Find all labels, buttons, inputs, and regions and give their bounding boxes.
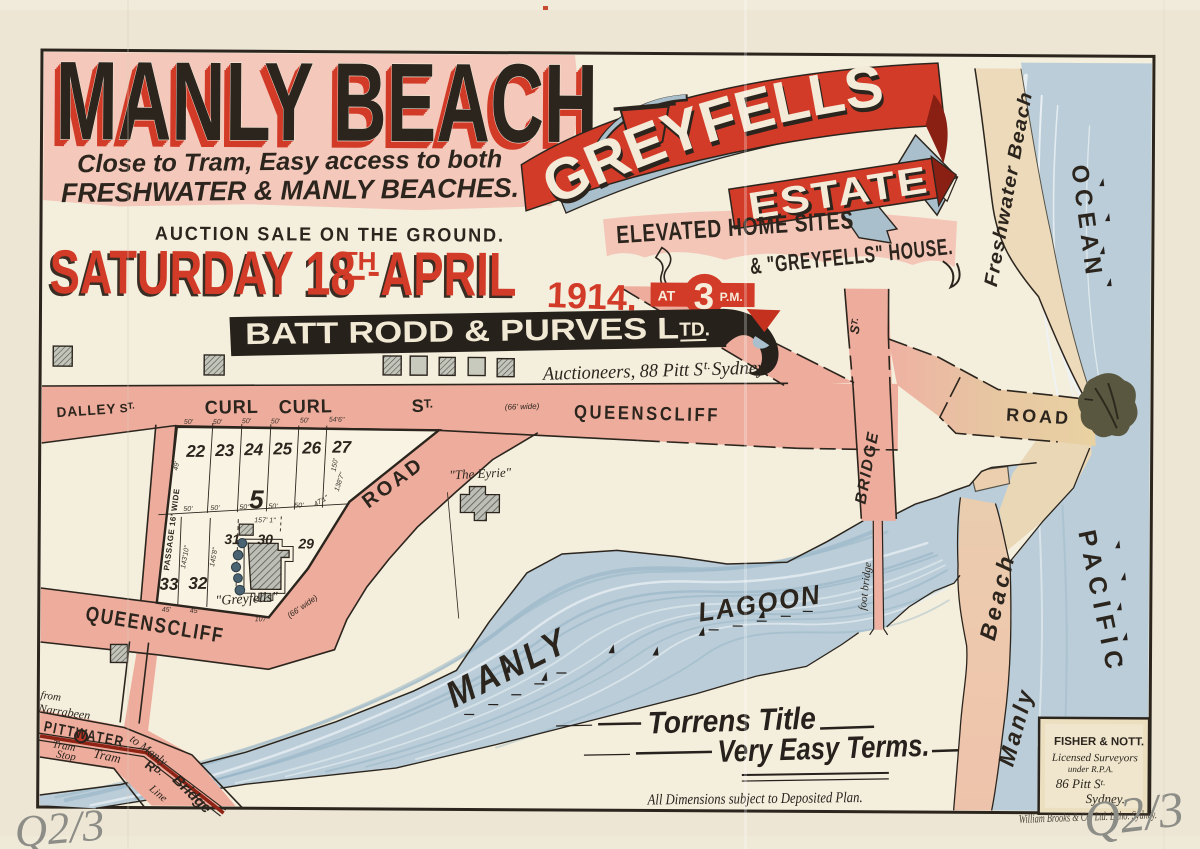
svg-text:50': 50' [213, 419, 223, 426]
svg-text:27: 27 [331, 438, 353, 457]
svg-text:50': 50' [300, 417, 310, 424]
svg-text:TD.: TD. [679, 319, 710, 340]
svg-text:30: 30 [257, 531, 273, 547]
svg-text:Licensed Surveyors: Licensed Surveyors [1051, 752, 1138, 765]
svg-text:ROAD: ROAD [1006, 405, 1072, 429]
svg-text:50': 50' [294, 502, 304, 509]
svg-text:50': 50' [183, 506, 193, 513]
svg-text:26: 26 [301, 438, 322, 457]
svg-text:Very Easy Terms.: Very Easy Terms. [717, 728, 930, 769]
svg-text:32: 32 [188, 574, 208, 593]
svg-text:All Dimensions subject to Depo: All Dimensions subject to Deposited Plan… [647, 790, 863, 809]
svg-text:BATT RODD & PURVES L: BATT RODD & PURVES L [245, 312, 679, 351]
svg-text:50': 50' [210, 505, 220, 512]
svg-text:QUEENSCLIFF: QUEENSCLIFF [574, 402, 720, 426]
svg-text:31: 31 [224, 531, 240, 547]
svg-text:23: 23 [214, 441, 235, 460]
svg-text:33: 33 [159, 575, 179, 594]
svg-text:45': 45' [190, 608, 200, 615]
svg-text:FISHER & NOTT.: FISHER & NOTT. [1054, 736, 1144, 749]
svg-text:under R.P.A.: under R.P.A. [1068, 764, 1113, 774]
svg-text:24: 24 [243, 440, 264, 459]
svg-text:50': 50' [242, 418, 252, 425]
svg-text:FRESHWATER & MANLY BEACHES.: FRESHWATER & MANLY BEACHES. [61, 173, 519, 208]
svg-text:22: 22 [185, 442, 206, 461]
svg-text:CURL: CURL [279, 396, 333, 418]
svg-text:Sydney.: Sydney. [712, 357, 770, 380]
svg-text:AT: AT [658, 288, 676, 304]
svg-text:5: 5 [249, 484, 264, 514]
svg-text:25: 25 [272, 439, 293, 458]
svg-text:50': 50' [268, 503, 278, 510]
svg-text:Q2/3: Q2/3 [13, 799, 107, 849]
svg-text:P.M.: P.M. [720, 290, 743, 304]
svg-text:157' 1": 157' 1" [254, 517, 276, 524]
svg-text:29: 29 [297, 535, 314, 551]
svg-text:107': 107' [255, 616, 269, 623]
svg-text:50': 50' [184, 419, 194, 426]
svg-text:"The Eyrie": "The Eyrie" [449, 464, 512, 482]
svg-text:TH: TH [342, 246, 377, 276]
svg-text:(66' wide): (66' wide) [505, 402, 540, 412]
svg-text:t.: t. [704, 357, 711, 372]
svg-text:45': 45' [162, 607, 172, 614]
svg-text:50': 50' [271, 418, 281, 425]
svg-text:SATURDAY 18: SATURDAY 18 [50, 237, 356, 308]
svg-text:CURL: CURL [205, 397, 259, 419]
svg-text:50': 50' [239, 504, 249, 511]
svg-text:APRIL: APRIL [381, 239, 517, 309]
svg-text:86 Pitt St.: 86 Pitt St. [1056, 776, 1106, 791]
svg-text:54'6": 54'6" [329, 417, 345, 424]
